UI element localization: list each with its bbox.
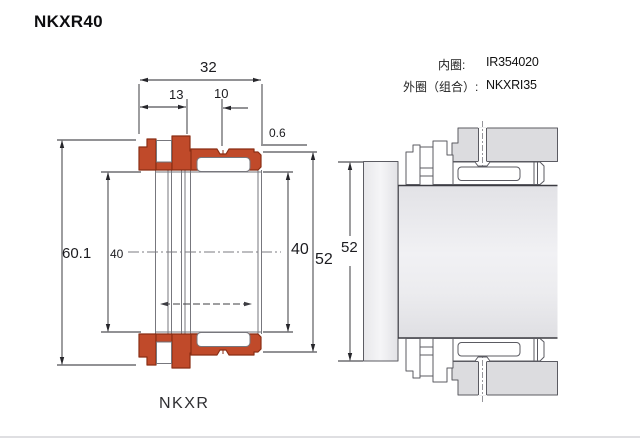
section-drawing — [128, 136, 281, 368]
mounting-bottom-half — [406, 339, 558, 403]
needle-rollers-white — [197, 158, 250, 172]
needle-rollers-mounted — [458, 167, 520, 181]
thrust-washer-under — [156, 162, 172, 170]
thrust-washer-strip — [420, 168, 433, 176]
section-top-half — [139, 136, 261, 172]
raceway-arrow — [160, 302, 252, 306]
center-flange — [433, 141, 453, 185]
thrust-roller — [420, 147, 433, 168]
lube-hole — [478, 128, 487, 162]
mounting-drawing — [364, 121, 558, 402]
mounting-top-half — [406, 121, 558, 185]
shaft-body — [399, 186, 558, 339]
thrust-washer-outer — [139, 139, 156, 170]
drawings-canvas — [0, 0, 640, 440]
thrust-roller-white — [157, 141, 172, 163]
shaft-shoulder — [364, 162, 399, 362]
catalog-page: NKXR40 内圈: IR354020 外圈（组合）: NKXRI35 32 1… — [0, 0, 640, 440]
page-bottom-rule — [0, 436, 640, 438]
dimension-lines — [57, 78, 363, 365]
thrust-washer-a — [406, 145, 420, 185]
section-bottom-half — [139, 333, 261, 369]
housing-block — [452, 128, 558, 162]
